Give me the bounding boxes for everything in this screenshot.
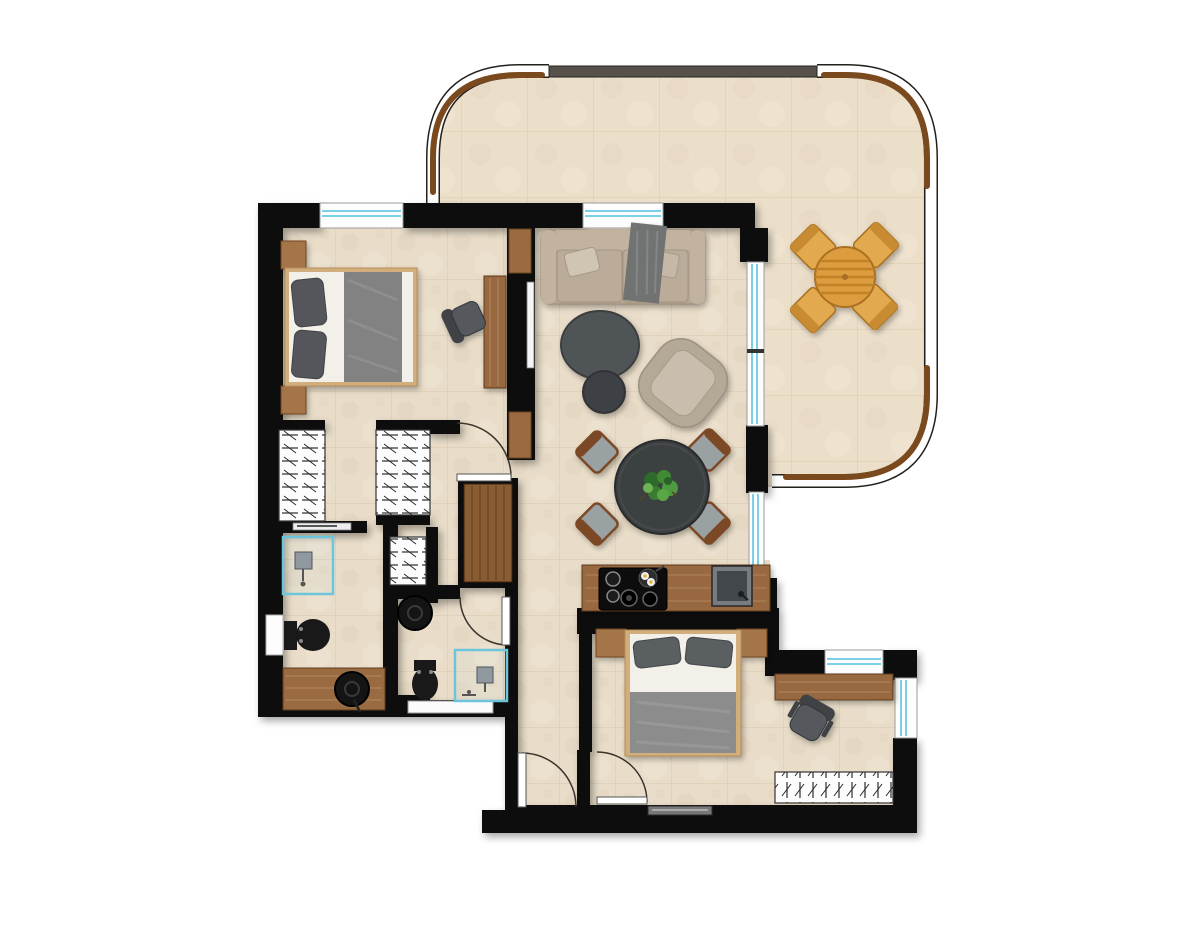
toilet1-button-1 [299,627,303,631]
burner-2 [643,592,657,606]
wall-glass-pillar-1 [746,425,768,493]
kitchen [582,565,770,611]
burner-1-center [626,595,632,601]
toilet1-bowl [296,619,330,651]
desk [775,674,893,700]
wardrobe-b-cap-top [376,420,430,430]
sofa-armrest [541,230,556,304]
wardrobe-bedroom2-hatch [775,772,893,803]
toilet1-tank [284,621,297,650]
bed2-pillow [633,636,682,668]
wardrobe-b-hatch [376,430,430,515]
desk [484,276,506,388]
bathroom2-door-leaf [502,597,510,645]
toilet2-bowl [412,668,438,700]
toilet1-button-2 [299,639,303,643]
floor-plan-page [0,0,1200,927]
sink1-bowl [335,672,369,706]
sofa-armrest [690,230,705,304]
egg-yolk-2 [649,580,653,584]
tv-cabinet-lower [509,412,531,458]
cooktop-dial-1 [606,572,620,586]
plant-leaf [657,489,669,501]
wall-bed1-south [428,420,460,434]
wall-bath2-top [396,585,460,599]
bathroom2-tray-edge [408,701,493,713]
nightstand [281,241,306,269]
shower1-head [295,552,312,569]
wall-terrace-corner [740,228,768,262]
bed1-pillow [291,277,328,327]
terrace-sliding-door [747,262,764,426]
tv-cabinet-upper [509,229,531,273]
toilet2-button-2 [429,670,433,674]
bed2-pillow [685,637,734,669]
wall-top-3 [663,203,755,228]
coffee-table-small [583,371,625,413]
wall-nook-north-1 [779,650,825,676]
plant-leaf [643,483,653,493]
egg-yolk-1 [643,574,647,578]
plant-leaf [664,477,672,485]
shower2-head [477,667,493,683]
wardrobe-a-cap-top [279,420,325,430]
nightstand [281,386,306,414]
bed1-pillow [291,330,327,380]
toilet2-button-1 [417,670,421,674]
coffee-table-large [561,311,639,379]
nightstand [596,629,626,657]
shower2-valve [467,690,471,694]
outdoor-table-hole [842,274,848,280]
terrace-top-glass-bar [549,66,817,77]
sink2-bowl [398,596,432,630]
sofa-back [556,230,690,250]
apartment-floor-plan [0,0,1200,927]
bathroom1-window [266,615,283,655]
entry-door-leaf [518,753,526,807]
shower1-valve [301,582,306,587]
wall-vestibule-stub [577,750,590,810]
tv-screen [527,282,534,368]
wardrobe-c-hatch [390,537,426,585]
bedroom2-door-leaf [597,797,647,804]
wardrobe-a-hatch [279,430,325,521]
terrace-sliding-door-mullion [747,349,764,353]
wall-top-2 [403,203,583,228]
wall-right-low [893,738,917,808]
dining-table [615,440,709,534]
cooktop-dial-2 [607,590,619,602]
dressing-door-leaf [457,474,511,481]
